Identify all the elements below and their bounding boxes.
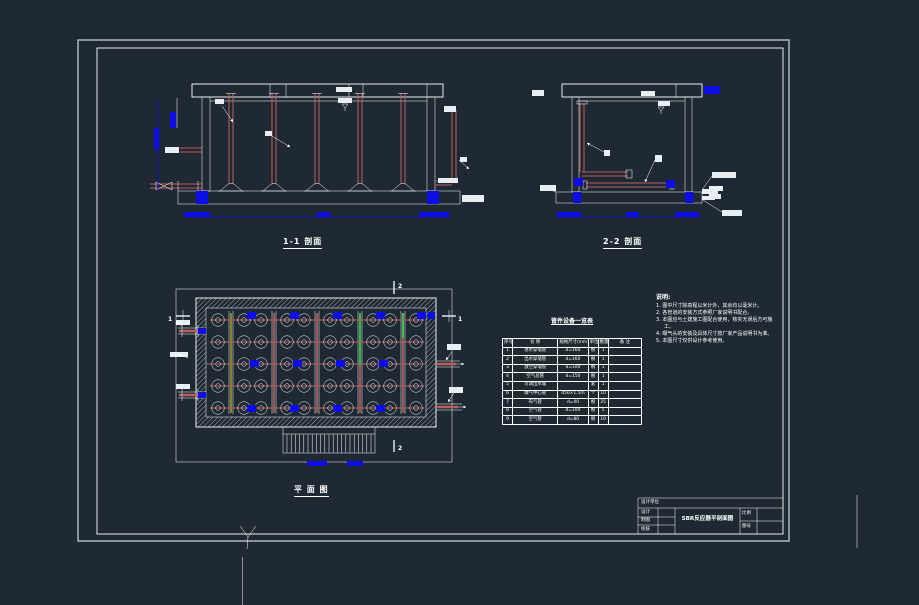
effluent-weir [283, 427, 375, 453]
cut-label-2-bottom: 2 [398, 445, 402, 452]
note-item: 4. 曝气头的安装及具体尺寸按厂家产品说明书为准。 [656, 331, 776, 337]
scale-label: 比例 [742, 511, 751, 516]
parts-col-header: 名 称 [513, 339, 558, 348]
note-item: 3. 本图应与土建施工图配合使用，核实无误后方可施工。 [656, 317, 776, 329]
notes-block: 说明: 1. 图中尺寸除高程以米计外，其余均以毫米计。2. 各管道的安装方式参照… [656, 292, 776, 345]
cad-drawing: 1 1 2 2 [0, 0, 919, 605]
title-block-org: 设计单位 [641, 500, 659, 505]
note-item: 1. 图中尺寸除高程以米计外，其余均以毫米计。 [656, 303, 776, 309]
parts-col-header: 序号 [503, 339, 513, 348]
parts-row: 4空气总管d=150根1 [503, 373, 642, 382]
notes-title: 说明: [656, 292, 776, 301]
section-2-2-label: 2-2 剖面 [603, 236, 642, 249]
section1-right-pipe [435, 110, 456, 185]
diffuser-grid [210, 311, 424, 414]
parts-table-header: 序号名 称规格尺寸(mm)单位数量备 注 [503, 339, 642, 348]
small-text-annotations [165, 87, 742, 393]
parts-table: 序号名 称规格尺寸(mm)单位数量备 注 1进水穿墙管d=160根12出水穿墙管… [502, 338, 642, 425]
cad-canvas[interactable]: 1 1 2 2 1-1 [0, 0, 919, 605]
plan-view-drawing: 1 1 2 2 [168, 281, 466, 462]
parts-col-header: 规格尺寸(mm) [558, 339, 588, 348]
parts-row: 9空气管d=80根10 [503, 416, 642, 425]
section2-air-pipe [577, 101, 674, 189]
parts-table-title: 管件设备一览表 [502, 316, 642, 325]
cut-label-1-left: 1 [168, 316, 172, 323]
note-item: 2. 各管道的安装方式参照厂家说明书配合。 [656, 310, 776, 316]
section-1-1-label: 1-1 剖面 [283, 236, 322, 249]
parts-row: 6曝气中心管d50×1.5m个10 [503, 390, 642, 399]
title-block-row-check: 校核 [641, 527, 650, 532]
parts-row: 1进水穿墙管d=160根1 [503, 347, 642, 356]
parts-row: 3放空穿墙管d=100根1 [503, 364, 642, 373]
parts-col-header: 单位 [588, 339, 598, 348]
parts-row: 7布气管d=40根25 [503, 399, 642, 408]
drawing-title: SBR反应器平剖面图 [675, 517, 740, 522]
cut-label-2-top: 2 [398, 283, 402, 290]
parts-row: 8空气管d=100根5 [503, 407, 642, 416]
parts-row: 2出水穿墙管d=160根1 [503, 356, 642, 365]
parts-col-header: 数量 [598, 339, 608, 348]
note-item: 5. 本图尺寸仅供设计参考使用。 [656, 338, 776, 344]
plan-view-label: 平 面 图 [294, 484, 329, 497]
leader-lines [176, 106, 469, 402]
title-block-row-design: 设计 [641, 510, 650, 515]
parts-col-header: 备 注 [608, 339, 641, 348]
parts-row: 5可调出水堰套1 [503, 381, 642, 390]
sheet-number-label: 图号 [742, 524, 751, 529]
cut-label-1-right: 1 [458, 316, 462, 323]
title-block-row-draw: 制图 [641, 518, 650, 523]
